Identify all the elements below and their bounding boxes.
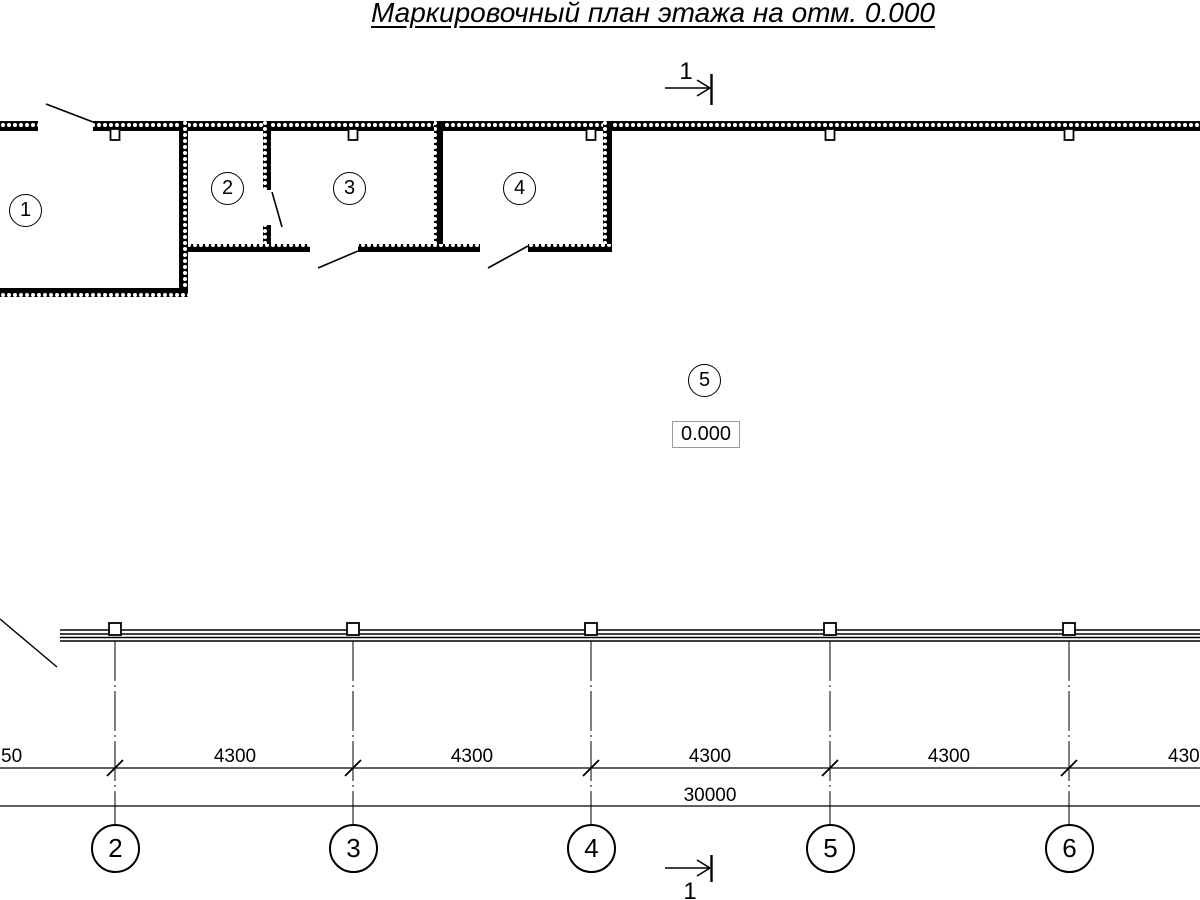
room3-bottom-wall bbox=[358, 244, 480, 252]
dim-total-30000: 30000 bbox=[650, 785, 770, 807]
post-marker bbox=[349, 129, 358, 140]
fence-break-diagonal bbox=[0, 619, 57, 667]
section-label-top: 1 bbox=[674, 58, 698, 86]
grid-axis-lines bbox=[115, 641, 1069, 824]
top-wall-main bbox=[93, 121, 1200, 131]
grid-bubble-3: 3 bbox=[329, 824, 378, 873]
post-marker bbox=[1065, 129, 1074, 140]
top-wall-left-segment bbox=[0, 121, 38, 131]
dim-segment-4300-a: 4300 bbox=[185, 746, 285, 768]
elevation-value: 0.000 bbox=[681, 423, 731, 446]
fence-posts bbox=[109, 623, 1075, 635]
walls bbox=[0, 121, 1200, 297]
section-arrow-barb bbox=[697, 868, 710, 876]
dim-segment-4300-d: 4300 bbox=[899, 746, 999, 768]
page-title: Маркировочный план этажа на отм. 0.000 bbox=[253, 0, 1053, 29]
plan-linework bbox=[0, 0, 1200, 900]
room-tag-5: 5 bbox=[688, 364, 721, 397]
post-marker bbox=[111, 129, 120, 140]
door-leaf bbox=[318, 251, 358, 268]
dim-segment-4300-c: 4300 bbox=[660, 746, 760, 768]
room-tag-1: 1 bbox=[9, 194, 42, 227]
elevation-mark-box: 0.000 bbox=[672, 421, 740, 448]
room4-bottom-wall bbox=[528, 244, 612, 252]
fence-post bbox=[109, 623, 121, 635]
room-tag-3: 3 bbox=[333, 172, 366, 205]
wall-room1-room2 bbox=[179, 121, 188, 297]
wall-room3-room4 bbox=[434, 121, 443, 252]
door-leaf bbox=[488, 246, 528, 268]
room-tag-4: 4 bbox=[503, 172, 536, 205]
fence-band bbox=[0, 619, 1200, 667]
fence-post bbox=[347, 623, 359, 635]
floor-plan-drawing: Маркировочный план этажа на отм. 0.000 1… bbox=[0, 0, 1200, 900]
post-marker bbox=[587, 129, 596, 140]
door-leaf bbox=[46, 104, 93, 122]
door-leaf bbox=[272, 192, 282, 227]
dimension-lines bbox=[0, 768, 1200, 806]
grid-bubble-5: 5 bbox=[806, 824, 855, 873]
fence-post bbox=[1063, 623, 1075, 635]
dim-segment-4300-b: 4300 bbox=[422, 746, 522, 768]
section-arrow-barb bbox=[697, 860, 710, 868]
section-label-bottom: 1 bbox=[678, 878, 702, 900]
room1-bottom-wall bbox=[0, 288, 188, 297]
post-marker bbox=[826, 129, 835, 140]
section-arrow-barb bbox=[697, 80, 710, 88]
room-tag-2: 2 bbox=[211, 172, 244, 205]
dim-segment-50: 50 bbox=[1, 746, 22, 768]
grid-bubble-4: 4 bbox=[567, 824, 616, 873]
grid-bubble-6: 6 bbox=[1045, 824, 1094, 873]
section-arrow-barb bbox=[697, 88, 710, 96]
room2-bottom-wall bbox=[188, 244, 310, 252]
wall-room4-right bbox=[603, 121, 612, 252]
fence-post bbox=[824, 623, 836, 635]
dim-segment-430: 430 bbox=[1168, 746, 1200, 768]
wall-room2-room3-upper bbox=[263, 121, 271, 190]
grid-bubble-2: 2 bbox=[91, 824, 140, 873]
fence-post bbox=[585, 623, 597, 635]
